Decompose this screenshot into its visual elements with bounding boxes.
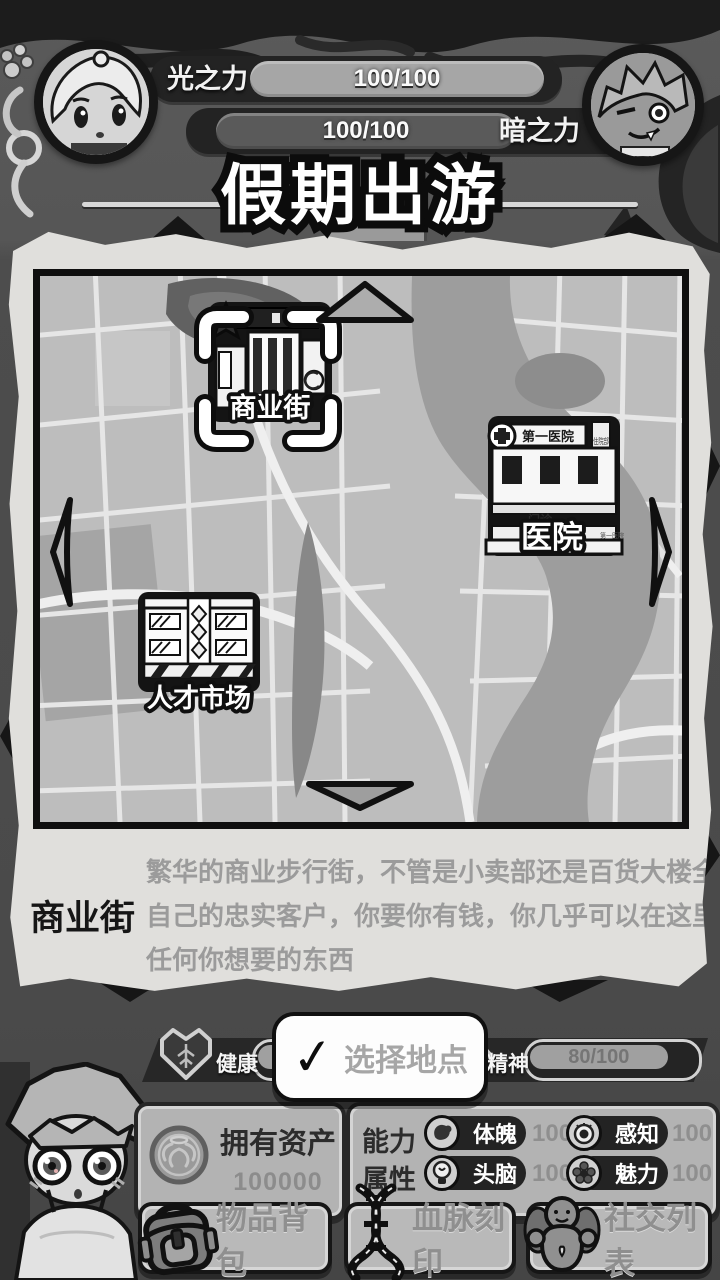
- light-character-face: [43, 49, 149, 155]
- dark-character-face: [591, 53, 695, 157]
- light-power-bar: 光之力 100/100: [150, 56, 562, 102]
- talent-market-label: 人才市场: [147, 683, 251, 713]
- select-location-label: 选择地点: [344, 1035, 468, 1080]
- commercial-street-label: 商业街: [230, 393, 311, 423]
- map-location-talent-market[interactable]: 人才市场: [138, 592, 260, 713]
- description-line: 自己的忠实客户，你要你有钱，你几乎可以在这里买到: [146, 894, 706, 938]
- social-people-icon: [520, 1186, 604, 1278]
- spirit-value: 80/100: [568, 1046, 629, 1069]
- perception-eye-icon: [566, 1115, 602, 1151]
- light-power-label: 光之力: [167, 56, 248, 102]
- backpack-icon: [132, 1186, 224, 1278]
- perception-value: 100: [672, 1120, 712, 1148]
- light-power-value: 100/100: [354, 65, 441, 93]
- dna-icon: [334, 1182, 418, 1280]
- light-power-fill: 100/100: [250, 61, 544, 97]
- map-location-hospital[interactable]: 第一医院 住院部 门诊 第一医院 医院: [486, 416, 624, 556]
- health-label: 健康: [216, 1048, 258, 1078]
- city-map: 商业街: [40, 276, 682, 822]
- spirit-bar-fill: 80/100: [530, 1045, 668, 1069]
- attributes-label-line1: 能力: [362, 1120, 416, 1159]
- muscle-icon: [424, 1115, 460, 1151]
- health-heart-icon: [156, 1026, 216, 1082]
- game-screen: 光之力 100/100 100/100 暗之力: [0, 0, 720, 1280]
- spirit-label: 精神: [487, 1048, 529, 1078]
- dark-power-value: 100/100: [323, 117, 410, 145]
- hospital-label: 医院: [521, 520, 583, 555]
- description-line: 任何你想要的东西: [146, 938, 706, 982]
- description-line: 繁华的商业步行街，不管是小卖部还是百货大楼全都有: [146, 850, 706, 894]
- check-icon: ✓: [290, 1030, 337, 1084]
- location-description: 繁华的商业步行街，不管是小卖部还是百货大楼全都有 自己的忠实客户，你要你有钱，你…: [146, 850, 706, 982]
- hospital-sign-text: 第一医院: [522, 429, 574, 444]
- spirit-bar: 80/100: [524, 1039, 702, 1081]
- brain-bulb-icon: [424, 1155, 460, 1191]
- hospital-ward-sign: 住院部: [593, 436, 609, 446]
- charm-value: 100: [672, 1160, 712, 1188]
- map-viewport[interactable]: 商业街: [33, 269, 689, 829]
- assets-label: 拥有资产: [220, 1120, 336, 1162]
- select-location-button[interactable]: ✓ 选择地点: [272, 1012, 488, 1102]
- location-name: 商业街: [30, 890, 135, 941]
- assets-coin-icon: [148, 1124, 210, 1186]
- dark-character-avatar[interactable]: [582, 44, 704, 166]
- light-character-avatar[interactable]: [34, 40, 158, 164]
- paper-panel: 商业街: [6, 228, 714, 994]
